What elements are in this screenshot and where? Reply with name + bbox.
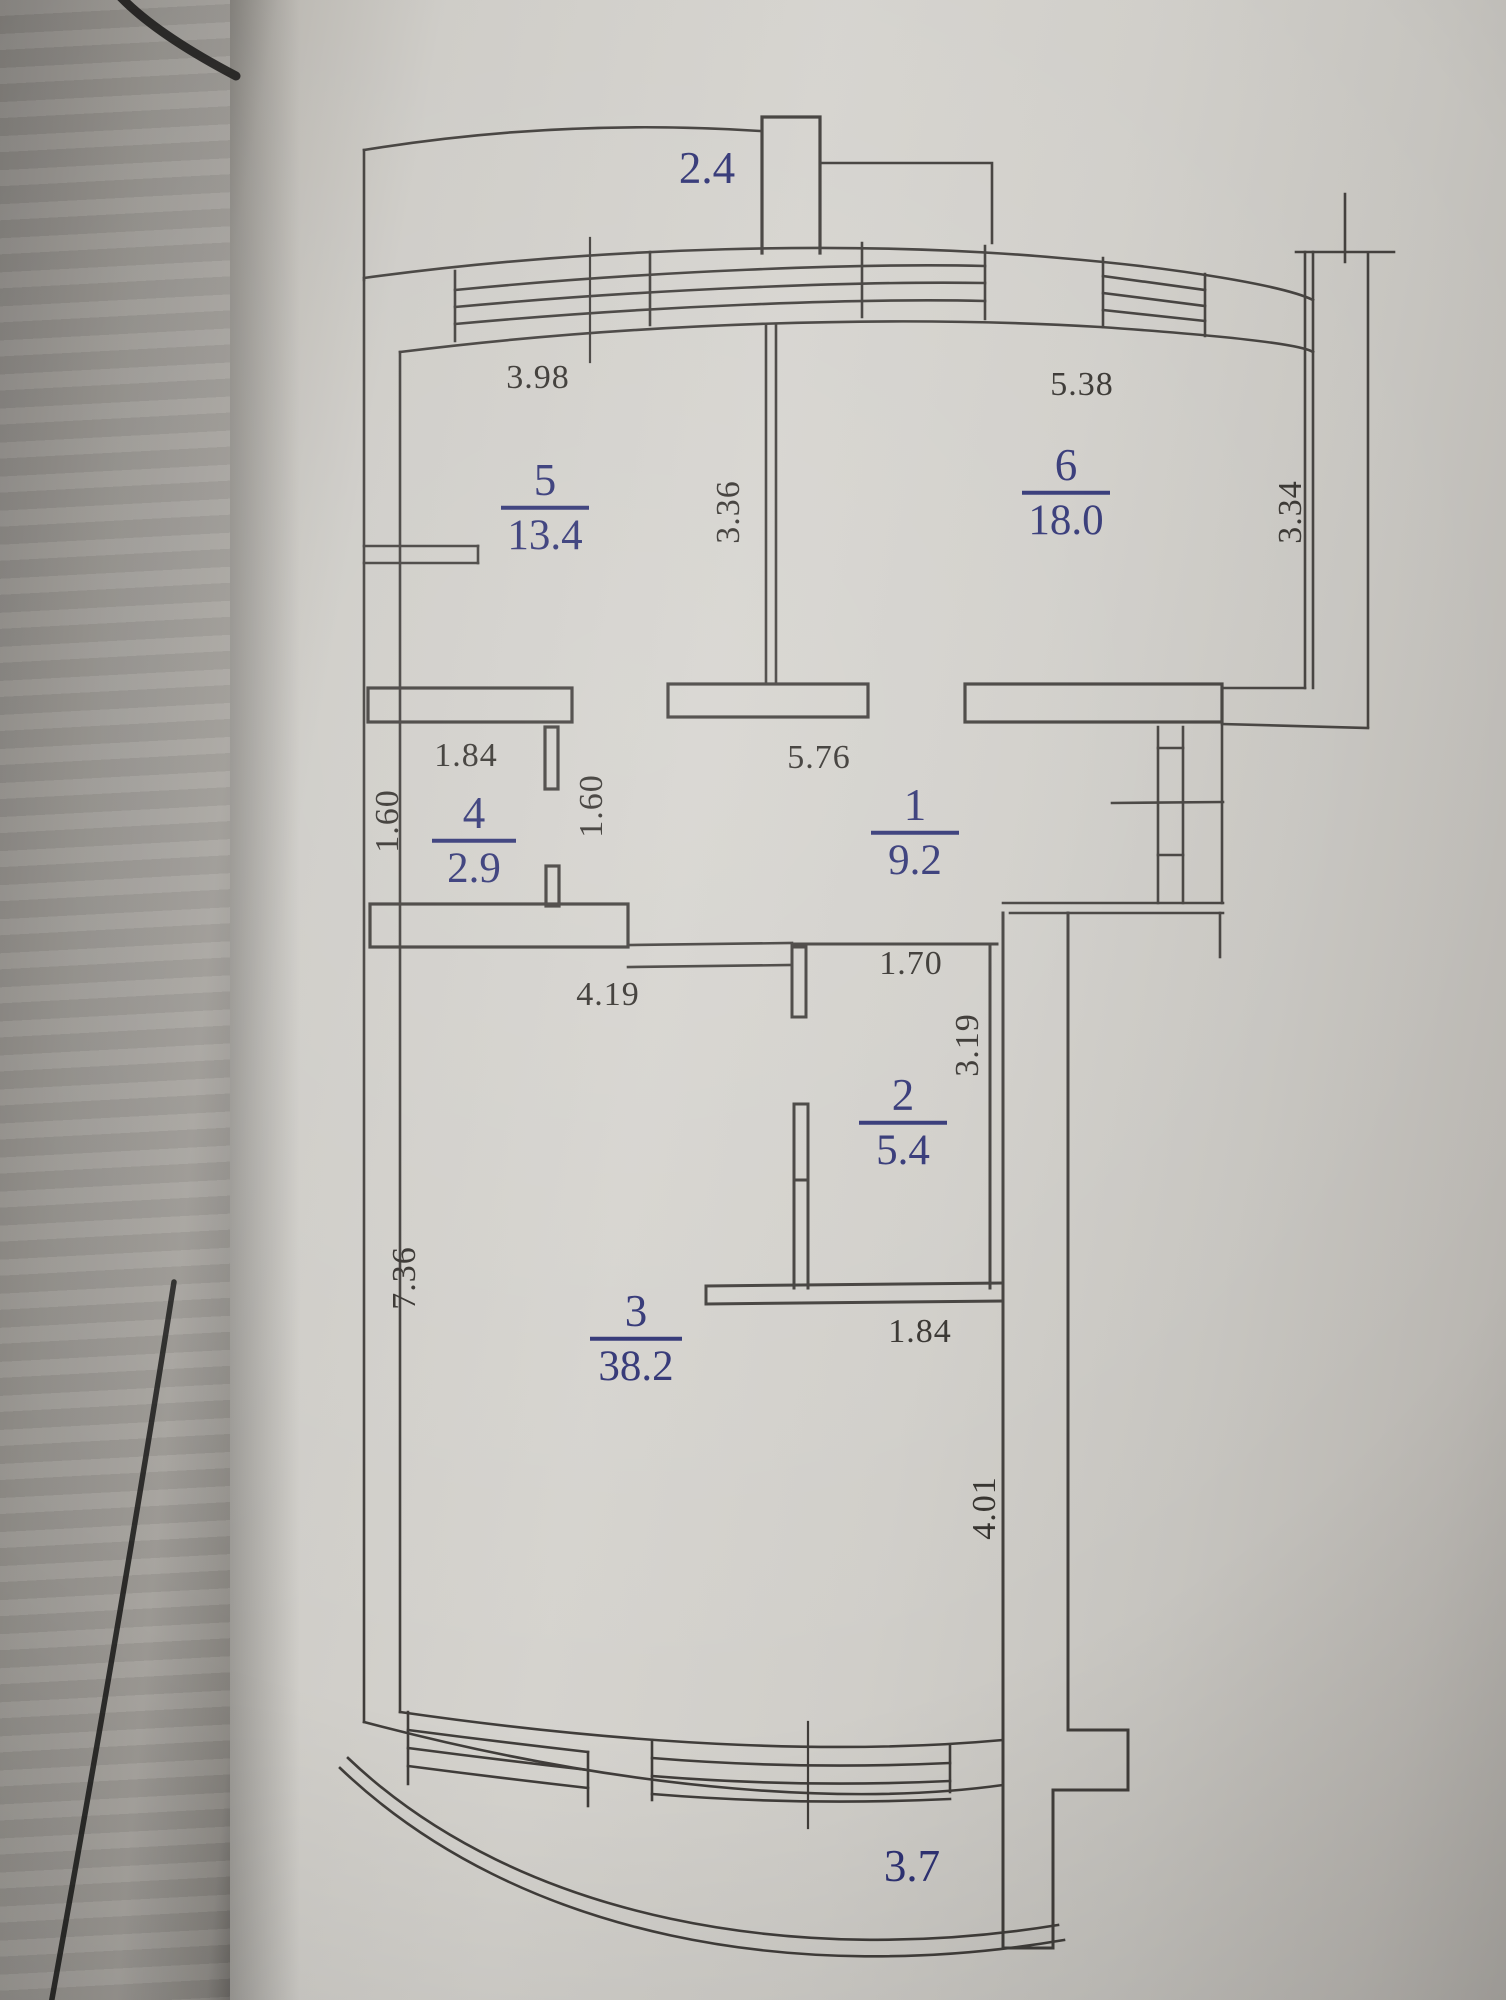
partition-room5-room6 bbox=[766, 324, 776, 684]
hall-opening bbox=[628, 943, 792, 967]
room-2-number: 2 bbox=[859, 1073, 947, 1118]
room-5-label: 513.4 bbox=[501, 458, 589, 557]
room-4-fraction-bar bbox=[432, 839, 516, 843]
dimension-5.38-1: 5.38 bbox=[1050, 366, 1114, 404]
bottom-windows bbox=[364, 1712, 1003, 1828]
room-5-area: 13.4 bbox=[501, 513, 589, 556]
room-2-label: 25.4 bbox=[859, 1073, 947, 1172]
room-6-fraction-bar bbox=[1022, 491, 1110, 495]
balcony-area-3.7: 3.7 bbox=[884, 1840, 940, 1892]
right-corridor-wall bbox=[1003, 913, 1128, 1948]
room-2-fraction-bar bbox=[859, 1121, 947, 1125]
dimension-1.70-8: 1.70 bbox=[879, 945, 943, 983]
room-5-fraction-bar bbox=[501, 506, 589, 510]
room-4-label: 42.9 bbox=[432, 791, 516, 890]
room-5-number: 5 bbox=[501, 458, 589, 503]
room-3-number: 3 bbox=[590, 1289, 682, 1334]
room-1-label: 19.2 bbox=[871, 783, 959, 882]
room-3-area: 38.2 bbox=[590, 1344, 682, 1387]
room2-walls bbox=[706, 944, 1003, 1304]
room-1-number: 1 bbox=[871, 783, 959, 828]
dimension-5.76-7: 5.76 bbox=[787, 739, 851, 777]
dimension-1.60-5: 1.60 bbox=[369, 789, 407, 853]
dimension-1.84-12: 1.84 bbox=[888, 1313, 952, 1351]
dimension-7.36-11: 7.36 bbox=[386, 1246, 424, 1310]
dimension-3.98-0: 3.98 bbox=[506, 359, 570, 397]
room-4-number: 4 bbox=[432, 791, 516, 836]
floorplan-svg bbox=[0, 0, 1506, 2000]
page-creases bbox=[50, 0, 236, 2000]
top-windows bbox=[364, 238, 1313, 362]
bottom-balcony-outline bbox=[340, 1758, 1064, 1956]
dimension-3.34-3: 3.34 bbox=[1272, 480, 1310, 544]
dimension-1.84-4: 1.84 bbox=[434, 737, 498, 775]
dimension-4.19-10: 4.19 bbox=[576, 976, 640, 1014]
left-exterior-wall bbox=[364, 280, 478, 1722]
room-6-number: 6 bbox=[1022, 443, 1110, 488]
dimension-3.36-2: 3.36 bbox=[710, 480, 748, 544]
balcony-area-2.4: 2.4 bbox=[679, 142, 735, 194]
dimension-1.60-6: 1.60 bbox=[573, 774, 611, 838]
room-3-fraction-bar bbox=[590, 1337, 682, 1341]
room-1-area: 9.2 bbox=[871, 838, 959, 881]
room-4-area: 2.9 bbox=[432, 846, 516, 889]
dimension-3.19-9: 3.19 bbox=[949, 1013, 987, 1077]
top-balcony-outline bbox=[364, 117, 1394, 280]
room-6-area: 18.0 bbox=[1022, 498, 1110, 541]
room-6-label: 618.0 bbox=[1022, 443, 1110, 542]
room-1-fraction-bar bbox=[871, 831, 959, 835]
room-2-area: 5.4 bbox=[859, 1128, 947, 1171]
floorplan-photo: 513.4618.042.919.225.4338.22.43.73.985.3… bbox=[0, 0, 1506, 2000]
entrance-door bbox=[1003, 722, 1223, 957]
dimension-4.01-13: 4.01 bbox=[966, 1476, 1004, 1540]
room-3-label: 338.2 bbox=[590, 1289, 682, 1388]
